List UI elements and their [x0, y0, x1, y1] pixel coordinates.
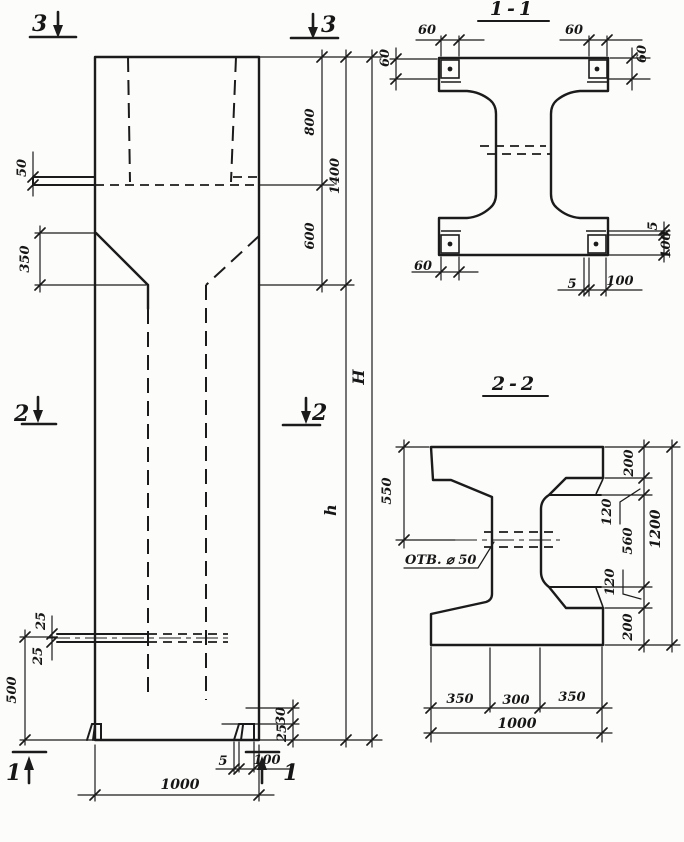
dim-1000-width-label: 1000 [498, 716, 537, 732]
section-2-2-dim-ticks [399, 442, 677, 738]
section-marker-3-right-label: 3 [321, 12, 336, 38]
dim-5-bottom-label: 5 [567, 277, 576, 292]
section-1-1-web-hidden-lines [480, 146, 551, 154]
dim-600-label: 600 [303, 222, 318, 249]
hole-diameter-label: ОТВ. ⌀ 50 [405, 553, 476, 568]
section-1-1-embed-plates [441, 60, 607, 253]
dim-200-bottom-label: 200 [621, 613, 636, 641]
section-marker-2-left: 2 [13, 397, 56, 427]
dim-5-foot-label: 5 [218, 754, 227, 769]
section-marker-3-right: 3 [291, 12, 338, 39]
elevation-hidden-lines [48, 57, 259, 700]
section-arrow-up-icon [24, 756, 34, 770]
dim-25-top-label: 25 [34, 612, 49, 631]
dim-100-right-label: 100 [659, 231, 674, 258]
dim-1400-label: 1400 [328, 158, 343, 194]
dim-350-label: 350 [18, 245, 33, 272]
elevation-base-feet [87, 724, 254, 740]
dim-5-right-label: 5 [646, 221, 661, 230]
dim-350-left-label: 350 [446, 692, 473, 707]
dim-H-label: H [349, 369, 368, 386]
dim-25-bottom-label: 25 [31, 647, 46, 666]
dim-50-label: 50 [15, 159, 30, 177]
dim-60-right-vert-label: 60 [635, 45, 650, 63]
dim-60-top-right-label: 60 [565, 23, 583, 38]
anchor-stud-icon [448, 67, 453, 72]
section-arrow-down-icon [301, 411, 311, 424]
dim-120-top-label: 120 [600, 498, 615, 525]
section-1-1-view: 1-1 60 60 60 60 60 5 100 5 100 [378, 0, 674, 296]
section-2-2-dimension-lines [396, 440, 680, 742]
section-arrow-down-icon [33, 410, 43, 423]
section-marker-1-left-label: 1 [6, 760, 21, 786]
section-1-1-dimension-lines [390, 35, 670, 296]
elevation-view: 50 350 800 1400 600 H h 25 25 500 30 25 … [5, 11, 382, 801]
dim-60-top-left-label: 60 [418, 23, 436, 38]
anchor-stud-icon [595, 67, 600, 72]
technical-drawing-canvas: 50 350 800 1400 600 H h 25 25 500 30 25 … [0, 0, 684, 842]
drawing-sheet: 50 350 800 1400 600 H h 25 25 500 30 25 … [0, 0, 684, 842]
section-marker-2-right: 2 [283, 398, 327, 426]
dim-350-right-label: 350 [558, 690, 585, 705]
dim-25-foot-label: 25 [275, 724, 290, 743]
dim-60-bottom-left-label: 60 [414, 259, 432, 274]
section-marker-3-left-label: 3 [32, 11, 47, 37]
section-1-1-title: 1-1 [490, 0, 536, 20]
section-marker-1-right-label: 1 [283, 760, 298, 786]
dim-500-label: 500 [5, 676, 20, 703]
section-marker-3-left: 3 [30, 11, 76, 38]
section-marker-1-left: 1 [6, 752, 46, 786]
section-marker-2-right-label: 2 [311, 400, 327, 426]
dim-30-label: 30 [274, 707, 289, 725]
section-1-1-outline [439, 58, 608, 255]
elevation-dim-ticks [20, 52, 377, 800]
anchor-stud-icon [448, 242, 453, 247]
dim-800-label: 800 [303, 108, 318, 135]
anchor-stud-icon [594, 242, 599, 247]
dim-100-bottom-label: 100 [606, 274, 633, 289]
dim-550-label: 550 [380, 477, 395, 504]
section-2-2-recess-lines [549, 495, 601, 587]
dim-1000-label: 1000 [161, 777, 200, 793]
section-2-2-hole: ОТВ. ⌀ 50 [404, 532, 560, 568]
dim-300-label: 300 [502, 693, 529, 708]
dim-100-foot-label: 100 [253, 753, 280, 768]
dim-120-bottom-label: 120 [603, 568, 618, 595]
section-2-2-view: 2-2 ОТВ. ⌀ 50 550 200 120 560 120 200 12… [380, 373, 680, 742]
section-2-2-title: 2-2 [491, 373, 538, 395]
dim-h-label: h [321, 504, 340, 516]
dim-200-top-label: 200 [622, 449, 637, 477]
dim-1200-label: 1200 [648, 509, 664, 548]
dim-60-left-vert-label: 60 [378, 49, 393, 67]
section-2-2-outline [431, 447, 603, 645]
dim-560-label: 560 [621, 527, 636, 554]
